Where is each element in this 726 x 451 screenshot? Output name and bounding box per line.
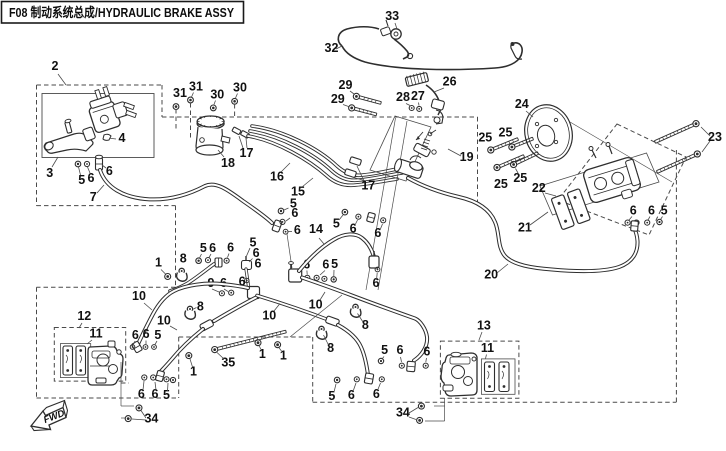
svg-text:29: 29 — [331, 92, 345, 106]
svg-text:6: 6 — [630, 204, 637, 218]
svg-text:25: 25 — [494, 177, 508, 191]
svg-text:32: 32 — [325, 41, 339, 55]
svg-text:3: 3 — [46, 166, 53, 180]
svg-text:19: 19 — [460, 150, 474, 164]
svg-text:5: 5 — [200, 241, 207, 255]
svg-text:6: 6 — [227, 240, 234, 254]
svg-text:17: 17 — [240, 146, 254, 160]
svg-text:31: 31 — [189, 80, 203, 94]
svg-text:F08 制动系统总成/HYDRAULIC BRAKE ASS: F08 制动系统总成/HYDRAULIC BRAKE ASSY — [9, 5, 234, 20]
svg-text:11: 11 — [481, 341, 494, 355]
svg-text:26: 26 — [443, 75, 457, 89]
svg-text:6: 6 — [397, 343, 404, 357]
svg-text:10: 10 — [132, 289, 146, 303]
svg-text:5: 5 — [381, 343, 388, 357]
svg-text:29: 29 — [339, 78, 353, 92]
svg-text:31: 31 — [173, 86, 187, 100]
svg-text:6: 6 — [648, 204, 655, 218]
svg-text:5: 5 — [333, 216, 340, 230]
svg-text:34: 34 — [396, 405, 410, 419]
svg-text:18: 18 — [221, 156, 235, 170]
svg-text:6: 6 — [423, 345, 430, 359]
svg-text:8: 8 — [197, 299, 204, 313]
svg-text:28: 28 — [396, 90, 410, 104]
svg-text:5: 5 — [163, 388, 170, 402]
svg-text:4: 4 — [119, 131, 126, 145]
svg-text:1: 1 — [155, 256, 162, 270]
svg-text:5: 5 — [331, 257, 338, 271]
svg-text:1: 1 — [190, 365, 197, 379]
svg-text:8: 8 — [362, 318, 369, 332]
svg-text:6: 6 — [294, 223, 301, 237]
svg-text:14: 14 — [309, 222, 323, 236]
svg-text:10: 10 — [157, 314, 171, 328]
svg-text:12: 12 — [77, 309, 91, 323]
svg-text:25: 25 — [478, 131, 492, 145]
svg-text:5: 5 — [78, 173, 85, 187]
svg-text:25: 25 — [499, 126, 513, 140]
svg-text:8: 8 — [327, 341, 334, 355]
svg-text:6: 6 — [373, 387, 380, 401]
svg-text:8: 8 — [180, 252, 187, 266]
svg-text:6: 6 — [88, 171, 95, 185]
svg-text:6: 6 — [209, 241, 216, 255]
svg-text:6: 6 — [373, 276, 380, 290]
svg-text:5: 5 — [661, 204, 668, 218]
svg-text:34: 34 — [144, 412, 158, 426]
svg-text:6: 6 — [106, 164, 113, 178]
svg-text:6: 6 — [255, 257, 262, 271]
svg-text:6: 6 — [322, 258, 329, 272]
svg-text:6: 6 — [291, 206, 298, 220]
svg-text:35: 35 — [221, 356, 235, 370]
svg-text:11: 11 — [89, 327, 102, 341]
svg-text:6: 6 — [143, 327, 150, 341]
svg-text:13: 13 — [477, 319, 491, 333]
svg-text:1: 1 — [259, 347, 266, 361]
svg-text:20: 20 — [484, 268, 498, 282]
svg-text:2: 2 — [52, 59, 59, 73]
svg-text:24: 24 — [515, 97, 529, 111]
svg-text:6: 6 — [132, 328, 139, 342]
svg-text:23: 23 — [708, 130, 722, 144]
svg-text:33: 33 — [385, 9, 399, 23]
svg-text:21: 21 — [518, 221, 532, 235]
svg-text:30: 30 — [233, 81, 247, 95]
svg-text:22: 22 — [532, 181, 546, 195]
svg-text:6: 6 — [152, 387, 159, 401]
svg-text:25: 25 — [513, 171, 527, 185]
svg-text:7: 7 — [90, 190, 97, 204]
svg-text:5: 5 — [154, 328, 161, 342]
svg-text:6: 6 — [138, 387, 145, 401]
svg-text:27: 27 — [411, 89, 425, 103]
svg-text:30: 30 — [210, 88, 224, 102]
